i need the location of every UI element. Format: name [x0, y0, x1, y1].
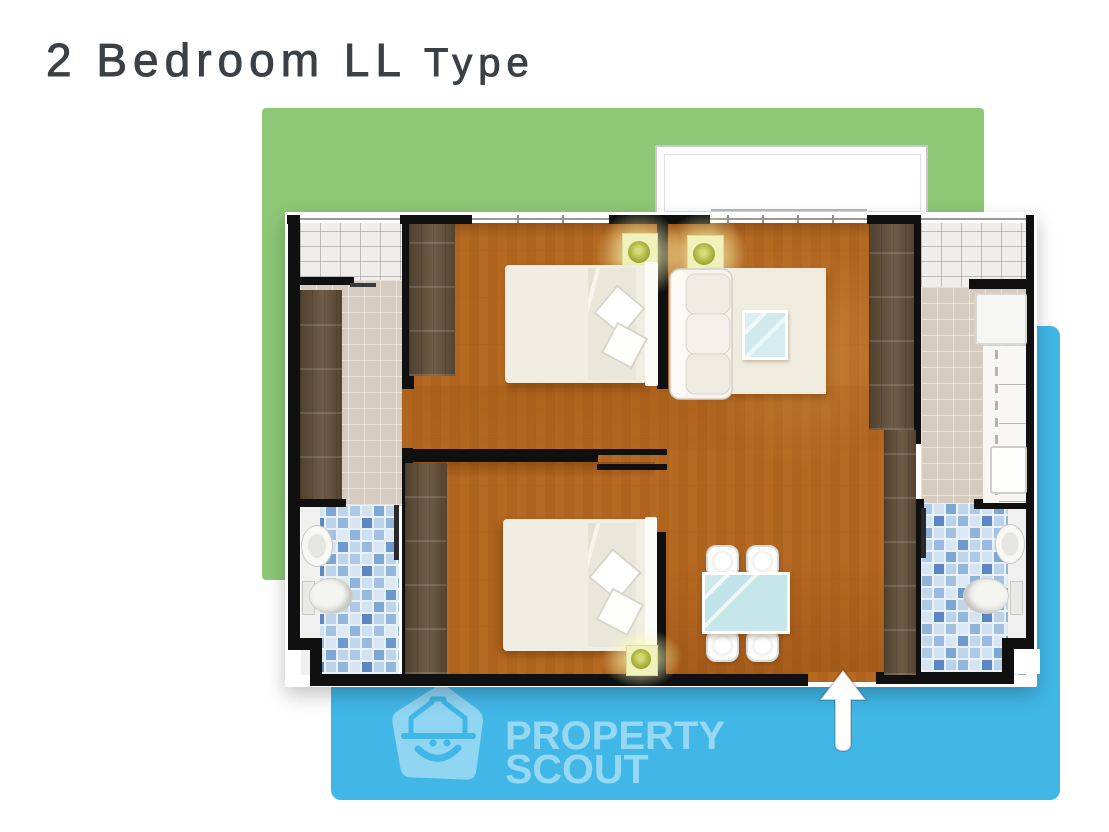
svg-text:SCOUT: SCOUT — [505, 746, 649, 792]
